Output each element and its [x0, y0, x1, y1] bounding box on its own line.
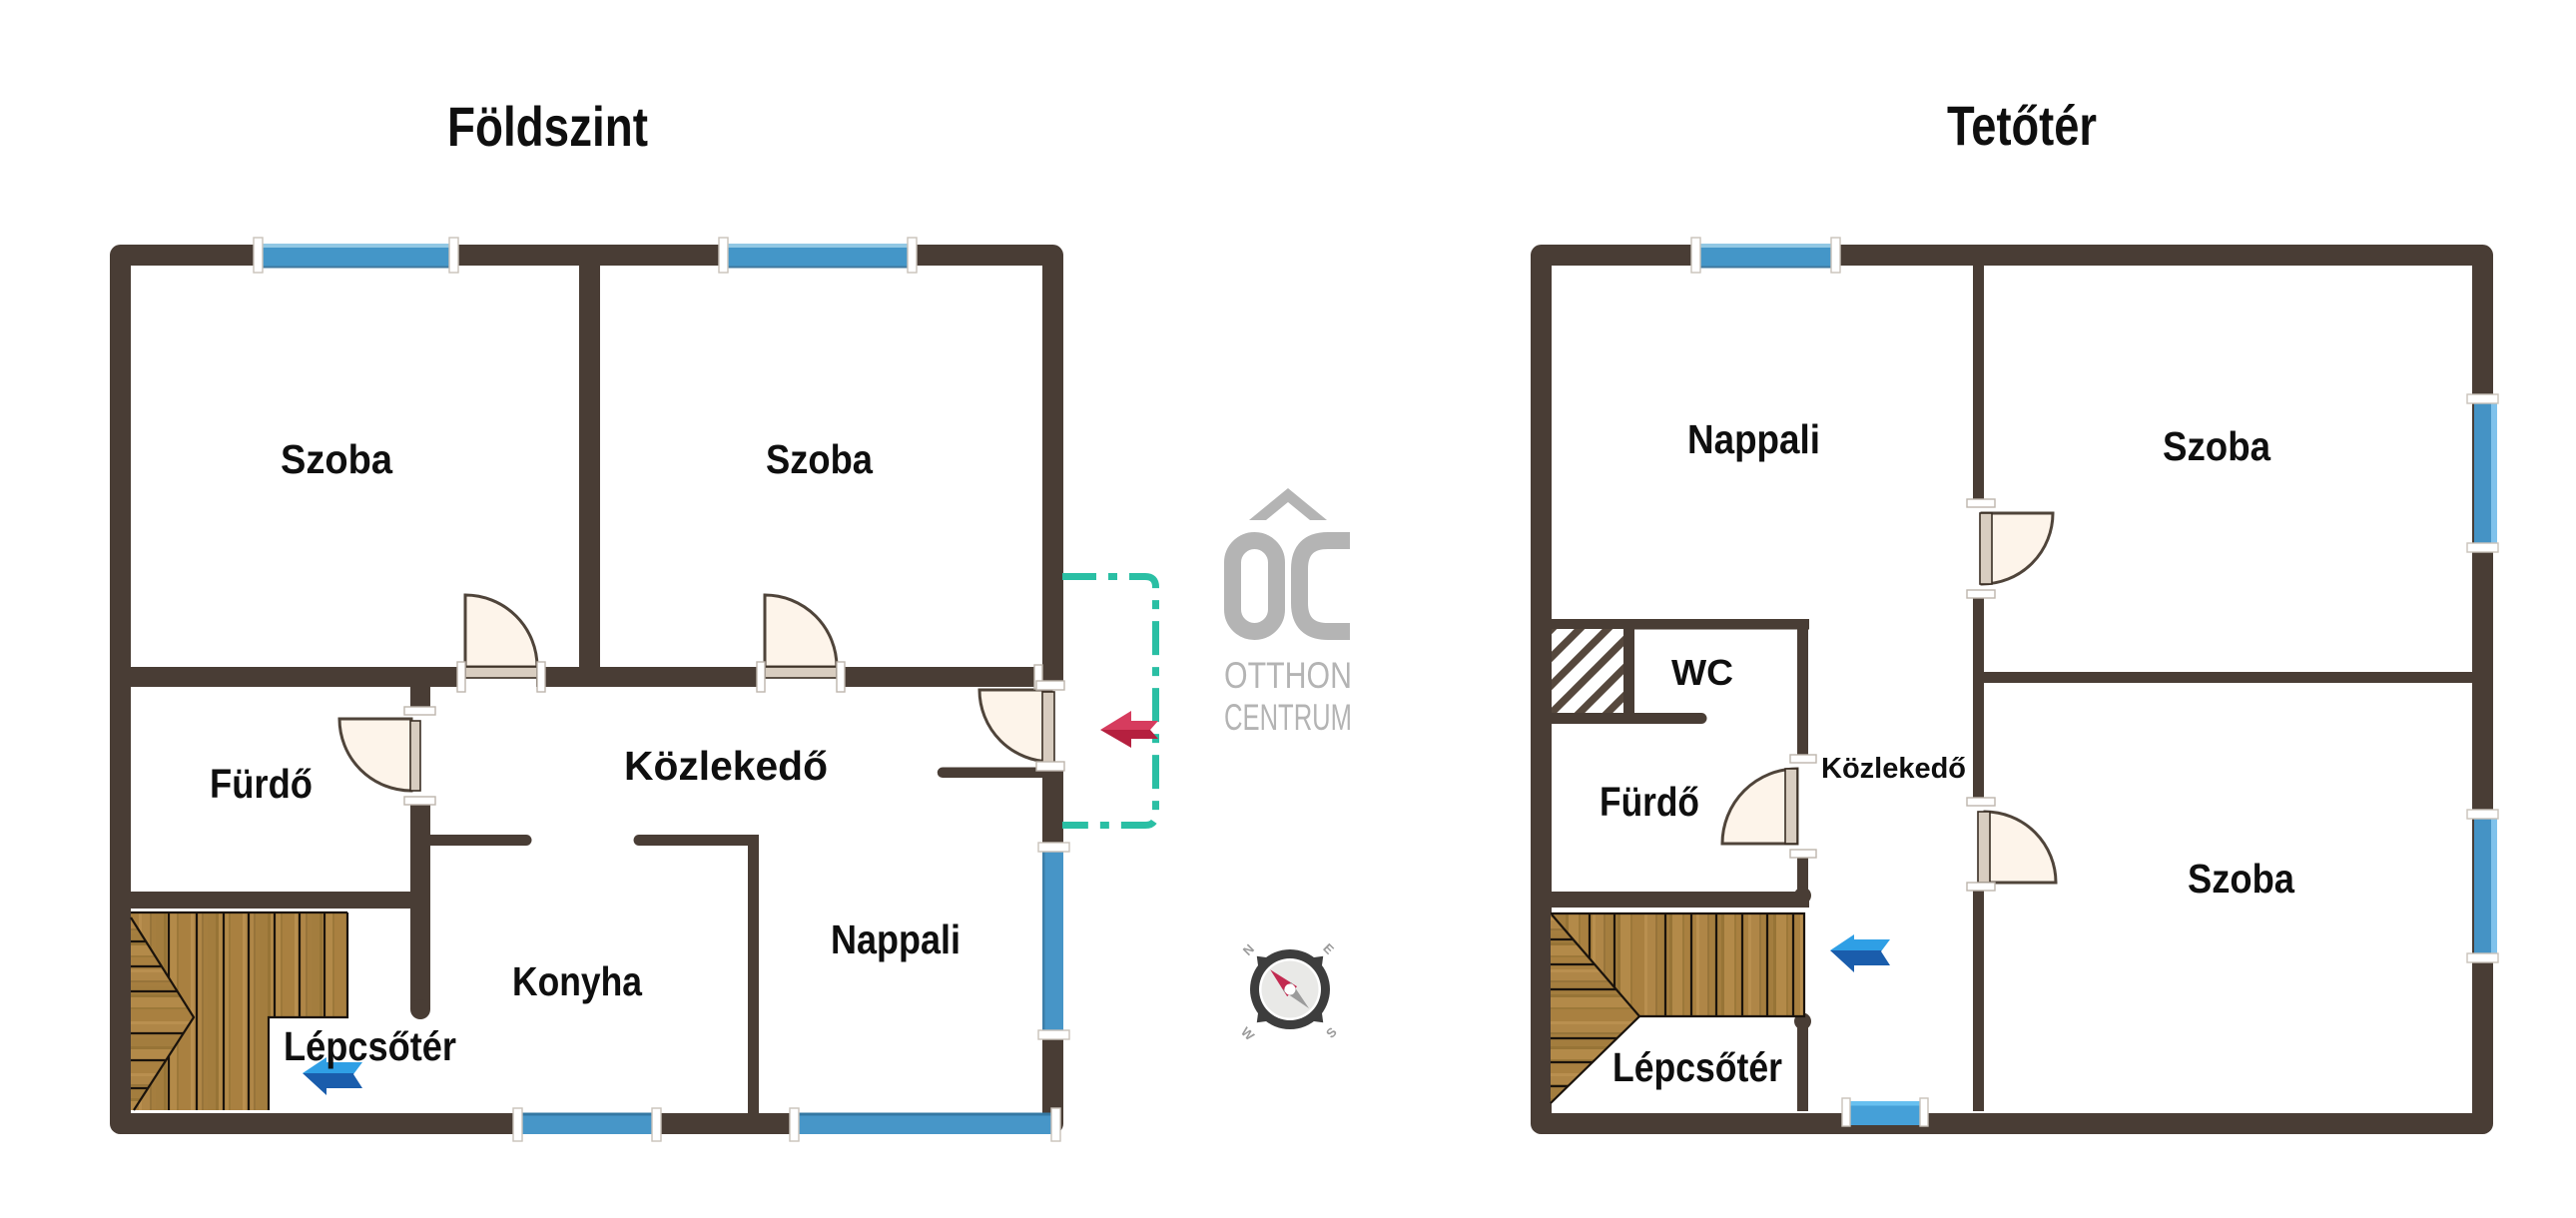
svg-text:Szoba: Szoba — [281, 436, 393, 482]
svg-text:Közlekedő: Közlekedő — [624, 743, 828, 789]
svg-text:Szoba: Szoba — [2188, 856, 2295, 902]
svg-text:WC: WC — [1671, 652, 1733, 693]
svg-text:Konyha: Konyha — [512, 958, 643, 1004]
svg-text:CENTRUM: CENTRUM — [1224, 697, 1352, 738]
svg-text:Lépcsőtér: Lépcsőtér — [284, 1023, 456, 1069]
svg-text:Fürdő: Fürdő — [1600, 779, 1699, 825]
svg-text:Földszint: Földszint — [447, 95, 648, 158]
svg-text:Tetőtér: Tetőtér — [1947, 94, 2097, 157]
svg-text:Szoba: Szoba — [2163, 423, 2271, 469]
svg-text:Nappali: Nappali — [1687, 416, 1820, 462]
svg-text:Közlekedő: Közlekedő — [1821, 753, 1966, 785]
svg-text:Fürdő: Fürdő — [210, 761, 313, 807]
svg-text:Nappali: Nappali — [831, 916, 961, 962]
svg-text:Szoba: Szoba — [766, 436, 874, 482]
svg-text:OTTHON: OTTHON — [1224, 655, 1352, 696]
svg-text:Lépcsőtér: Lépcsőtér — [1612, 1044, 1782, 1090]
